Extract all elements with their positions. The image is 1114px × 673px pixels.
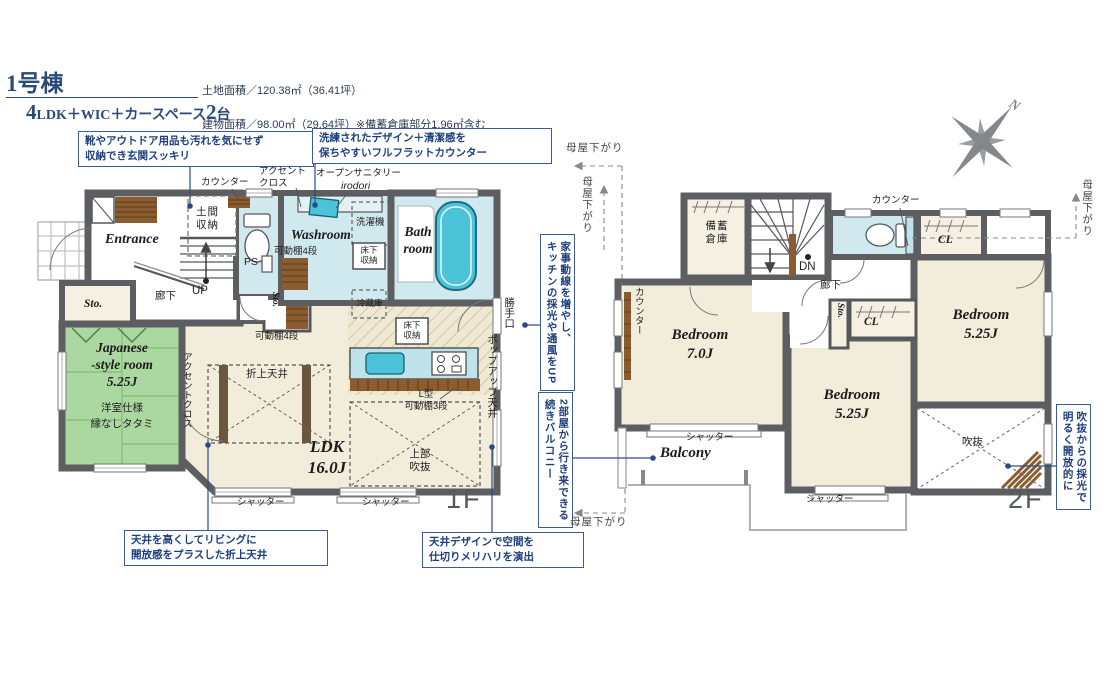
room-storage-mid: Sto. bbox=[268, 292, 280, 307]
floor1-label: 1F bbox=[446, 484, 482, 515]
label-counter-bedroom: カウンター bbox=[632, 287, 644, 335]
label-accent-cloth-ldk: アクセントクロス bbox=[180, 352, 192, 428]
room-entrance: Entrance bbox=[105, 231, 159, 249]
unit-plan-count: 4 bbox=[26, 100, 37, 124]
label-jroom-tatami: 縁なしタタミ bbox=[62, 418, 182, 431]
building-title: 1号棟 bbox=[6, 64, 64, 98]
label-accent-cloth-top: アクセント クロス bbox=[259, 166, 306, 190]
label-fridge: 冷蔵庫 bbox=[357, 298, 383, 309]
label-shutter-2f-a: シャッター bbox=[686, 432, 734, 444]
callout-balcony: 2部屋から行き来できる 続きバルコニー bbox=[538, 392, 573, 528]
label-moya-bottom: 母屋下がり bbox=[570, 516, 628, 529]
label-underfloor-washroom: 床下 収納 bbox=[355, 246, 383, 266]
label-l-shelf: L型 可動棚3段 bbox=[395, 389, 457, 413]
title-divider bbox=[6, 97, 198, 98]
compass-icon: N bbox=[951, 96, 1023, 177]
label-irodori: irodori bbox=[341, 180, 370, 193]
room-hallway-1f: 廊下 bbox=[155, 290, 176, 303]
label-closet-top: CL bbox=[938, 233, 953, 247]
label-shutter-2f-b: シャッター bbox=[806, 494, 854, 506]
label-oriage-ceiling: 折上天井 bbox=[246, 368, 288, 381]
unit-plan-text: LDK＋WIC＋カースペース bbox=[37, 108, 207, 123]
room-japanese-style: Japanese -style room 5.25J bbox=[62, 340, 182, 391]
label-open-sanitary: オープンサニタリー bbox=[316, 168, 401, 180]
label-closet-mid: CL bbox=[864, 315, 879, 329]
unit-plan: 4LDK＋WIC＋カースペース2台 bbox=[26, 100, 231, 125]
room-hallway-2f: 廊下 bbox=[820, 279, 841, 292]
label-stairs-up: UP bbox=[192, 284, 208, 298]
label-shutter-1f-b: シャッター bbox=[362, 497, 410, 509]
callout-ceiling-design: 天井デザインで空間を 仕切りメリハリを演出 bbox=[422, 532, 584, 568]
label-popup-ceiling: ポップアップ天井 bbox=[485, 334, 498, 418]
label-moya-top: 母屋下がり bbox=[566, 142, 624, 155]
room-storage-left: Sto. bbox=[84, 297, 102, 311]
land-area: 土地面積／120.38㎡（36.41坪） bbox=[202, 83, 486, 100]
floor-plan-page: N 1号棟 4LDK＋WIC＋カースペース2台 土地面積／120.38㎡（36.… bbox=[0, 0, 1114, 673]
room-void: 吹抜 bbox=[962, 436, 983, 449]
room-stockpile-storage: 備蓄 倉庫 bbox=[684, 220, 750, 246]
callout-entrance-storage: 靴やアウトドア用品も汚れを気にせず 収納でき玄関スッキリ bbox=[78, 131, 314, 167]
label-moya-left: 母屋下がり bbox=[580, 176, 593, 234]
label-ps: PS bbox=[244, 256, 258, 269]
room-doma-storage: 土間 収納 bbox=[196, 206, 219, 232]
room-bedroom-525-mid: Bedroom 5.25J bbox=[797, 386, 907, 424]
room-bathroom: Bath room bbox=[396, 224, 440, 258]
label-stairs-down: DN bbox=[799, 260, 816, 274]
callout-sanitary-counter: 洗練されたデザイン＋清潔感を 保ちやすいフルフラットカウンター bbox=[312, 128, 552, 164]
room-balcony: Balcony bbox=[660, 444, 711, 463]
label-counter-1f: カウンター bbox=[201, 177, 249, 189]
label-upper-void: 上部 吹抜 bbox=[400, 448, 440, 474]
callout-kitchen-light: 家事動線を増やし、 キッチンの採光や通風をUP bbox=[540, 234, 575, 391]
label-underfloor-kitchen: 床下 収納 bbox=[398, 321, 426, 341]
floor2-label: 2F bbox=[1008, 484, 1044, 515]
room-washroom: Washroom bbox=[291, 227, 351, 244]
room-ldk: LDK 16.0J bbox=[287, 436, 367, 479]
label-counter-toilet-2f: カウンター bbox=[872, 195, 920, 207]
callout-void-light: 吹抜からの採光で 明るく開放的に bbox=[1056, 404, 1091, 510]
label-jroom-spec: 洋室仕様 bbox=[62, 402, 182, 415]
room-bedroom-525-right: Bedroom 5.25J bbox=[926, 306, 1036, 344]
label-back-door: 勝手口 bbox=[502, 297, 515, 329]
callout-oriage-ceiling: 天井を高くしてリビングに 開放感をプラスした折上天井 bbox=[124, 530, 328, 566]
label-moya-right: 母屋下がり bbox=[1080, 179, 1093, 237]
label-shelf4-ldk: 可動棚4段 bbox=[255, 331, 298, 343]
label-washer: 洗濯機 bbox=[356, 217, 385, 229]
room-bedroom-7: Bedroom 7.0J bbox=[645, 326, 755, 364]
label-shelf4-washroom: 可動棚4段 bbox=[274, 246, 317, 258]
room-storage-2f: Sto. bbox=[833, 303, 845, 318]
label-shutter-1f-a: シャッター bbox=[237, 497, 285, 509]
